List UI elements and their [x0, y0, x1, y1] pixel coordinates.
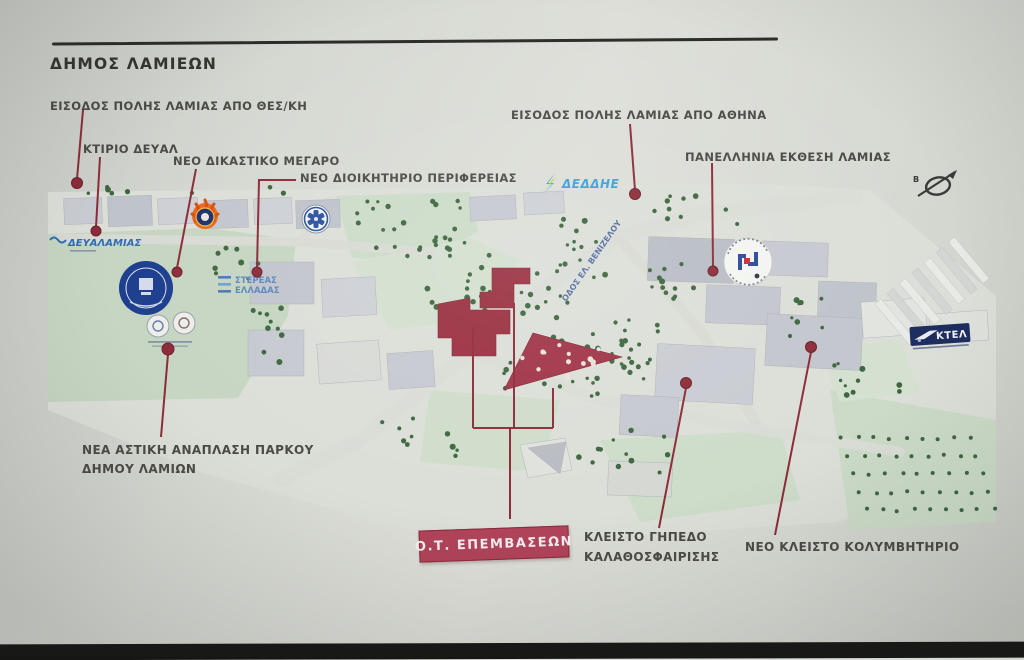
expo-circle-logo [724, 238, 772, 286]
callout-ktirio-deyal: ΚΤΙΡΙΟ ΔΕΥΑΛ [83, 142, 178, 156]
callout-basketball-line1: ΚΛΕΙΣΤΟ ΓΗΠΕΔΟ [584, 530, 707, 544]
ot-interventions-box: Ο.Τ. ΕΠΕΜΒΑΣΕΩΝ [418, 525, 569, 562]
star-of-life-icon [302, 205, 330, 233]
callout-expo: ΠΑΝΕΛΛΗΝΙΑ ΕΚΘΕΣΗ ΛΑΜΙΑΣ [685, 150, 891, 164]
callout-entry-thessaloniki: ΕΙΣΟΔΟΣ ΠΟΛΗΣ ΛΑΜΙΑΣ ΑΠΟ ΘΕΣ/ΚΗ [50, 99, 307, 113]
fire-service-icon [192, 200, 218, 229]
callout-pool: ΝΕΟ ΚΛΕΙΣΤΟ ΚΟΛΥΜΒΗΤΗΡΙΟ [745, 540, 960, 554]
ot-interventions-label: Ο.Τ. ΕΠΕΜΒΑΣΕΩΝ [415, 534, 573, 555]
svg-text:ΔΕΔΔΗΕ: ΔΕΔΔΗΕ [561, 177, 620, 191]
ministry-circle-logo [119, 261, 173, 315]
page-title: ΔΗΜΟΣ ΛΑΜΙΕΩΝ [50, 55, 217, 73]
bottom-black-bar [0, 642, 1024, 660]
slide-photo: { "title": "ΔΗΜΟΣ ΛΑΜΙΕΩΝ", "callouts": … [0, 0, 1024, 657]
callout-park-redev-line2: ΔΗΜΟΥ ΛΑΜΙΩΝ [82, 462, 196, 476]
north-compass-icon: Β [913, 170, 957, 197]
callout-new-region-hq: ΝΕΟ ΔΙΟΙΚΗΤΗΡΙΟ ΠΕΡΙΦΕΡΕΙΑΣ [300, 171, 517, 185]
callout-park-redev-line1: ΝΕΑ ΑΣΤΙΚΗ ΑΝΑΠΛΑΣΗ ΠΑΡΚΟΥ [82, 443, 314, 457]
callout-new-courthouse: ΝΕΟ ΔΙΚΑΣΤΙΚΟ ΜΕΓΑΡΟ [173, 154, 340, 168]
svg-text:ΕΛΛΑΔΑΣ: ΕΛΛΑΔΑΣ [235, 286, 280, 296]
svg-text:Β: Β [913, 175, 919, 184]
svg-text:ΔΕΥΑΛΑΜΙΑΣ: ΔΕΥΑΛΑΜΙΑΣ [67, 238, 141, 249]
callout-basketball-line2: ΚΑΛΑΘΟΣΦΑΙΡΙΣΗΣ [584, 550, 719, 564]
svg-text:ΣΤΕΡΕΑΣ: ΣΤΕΡΕΑΣ [235, 276, 277, 286]
svg-text:ΚΤΕΛ: ΚΤΕΛ [936, 329, 968, 342]
callout-entry-athens: ΕΙΣΟΔΟΣ ΠΟΛΗΣ ΛΑΜΙΑΣ ΑΠΟ ΑΘΗΝΑ [511, 108, 767, 122]
